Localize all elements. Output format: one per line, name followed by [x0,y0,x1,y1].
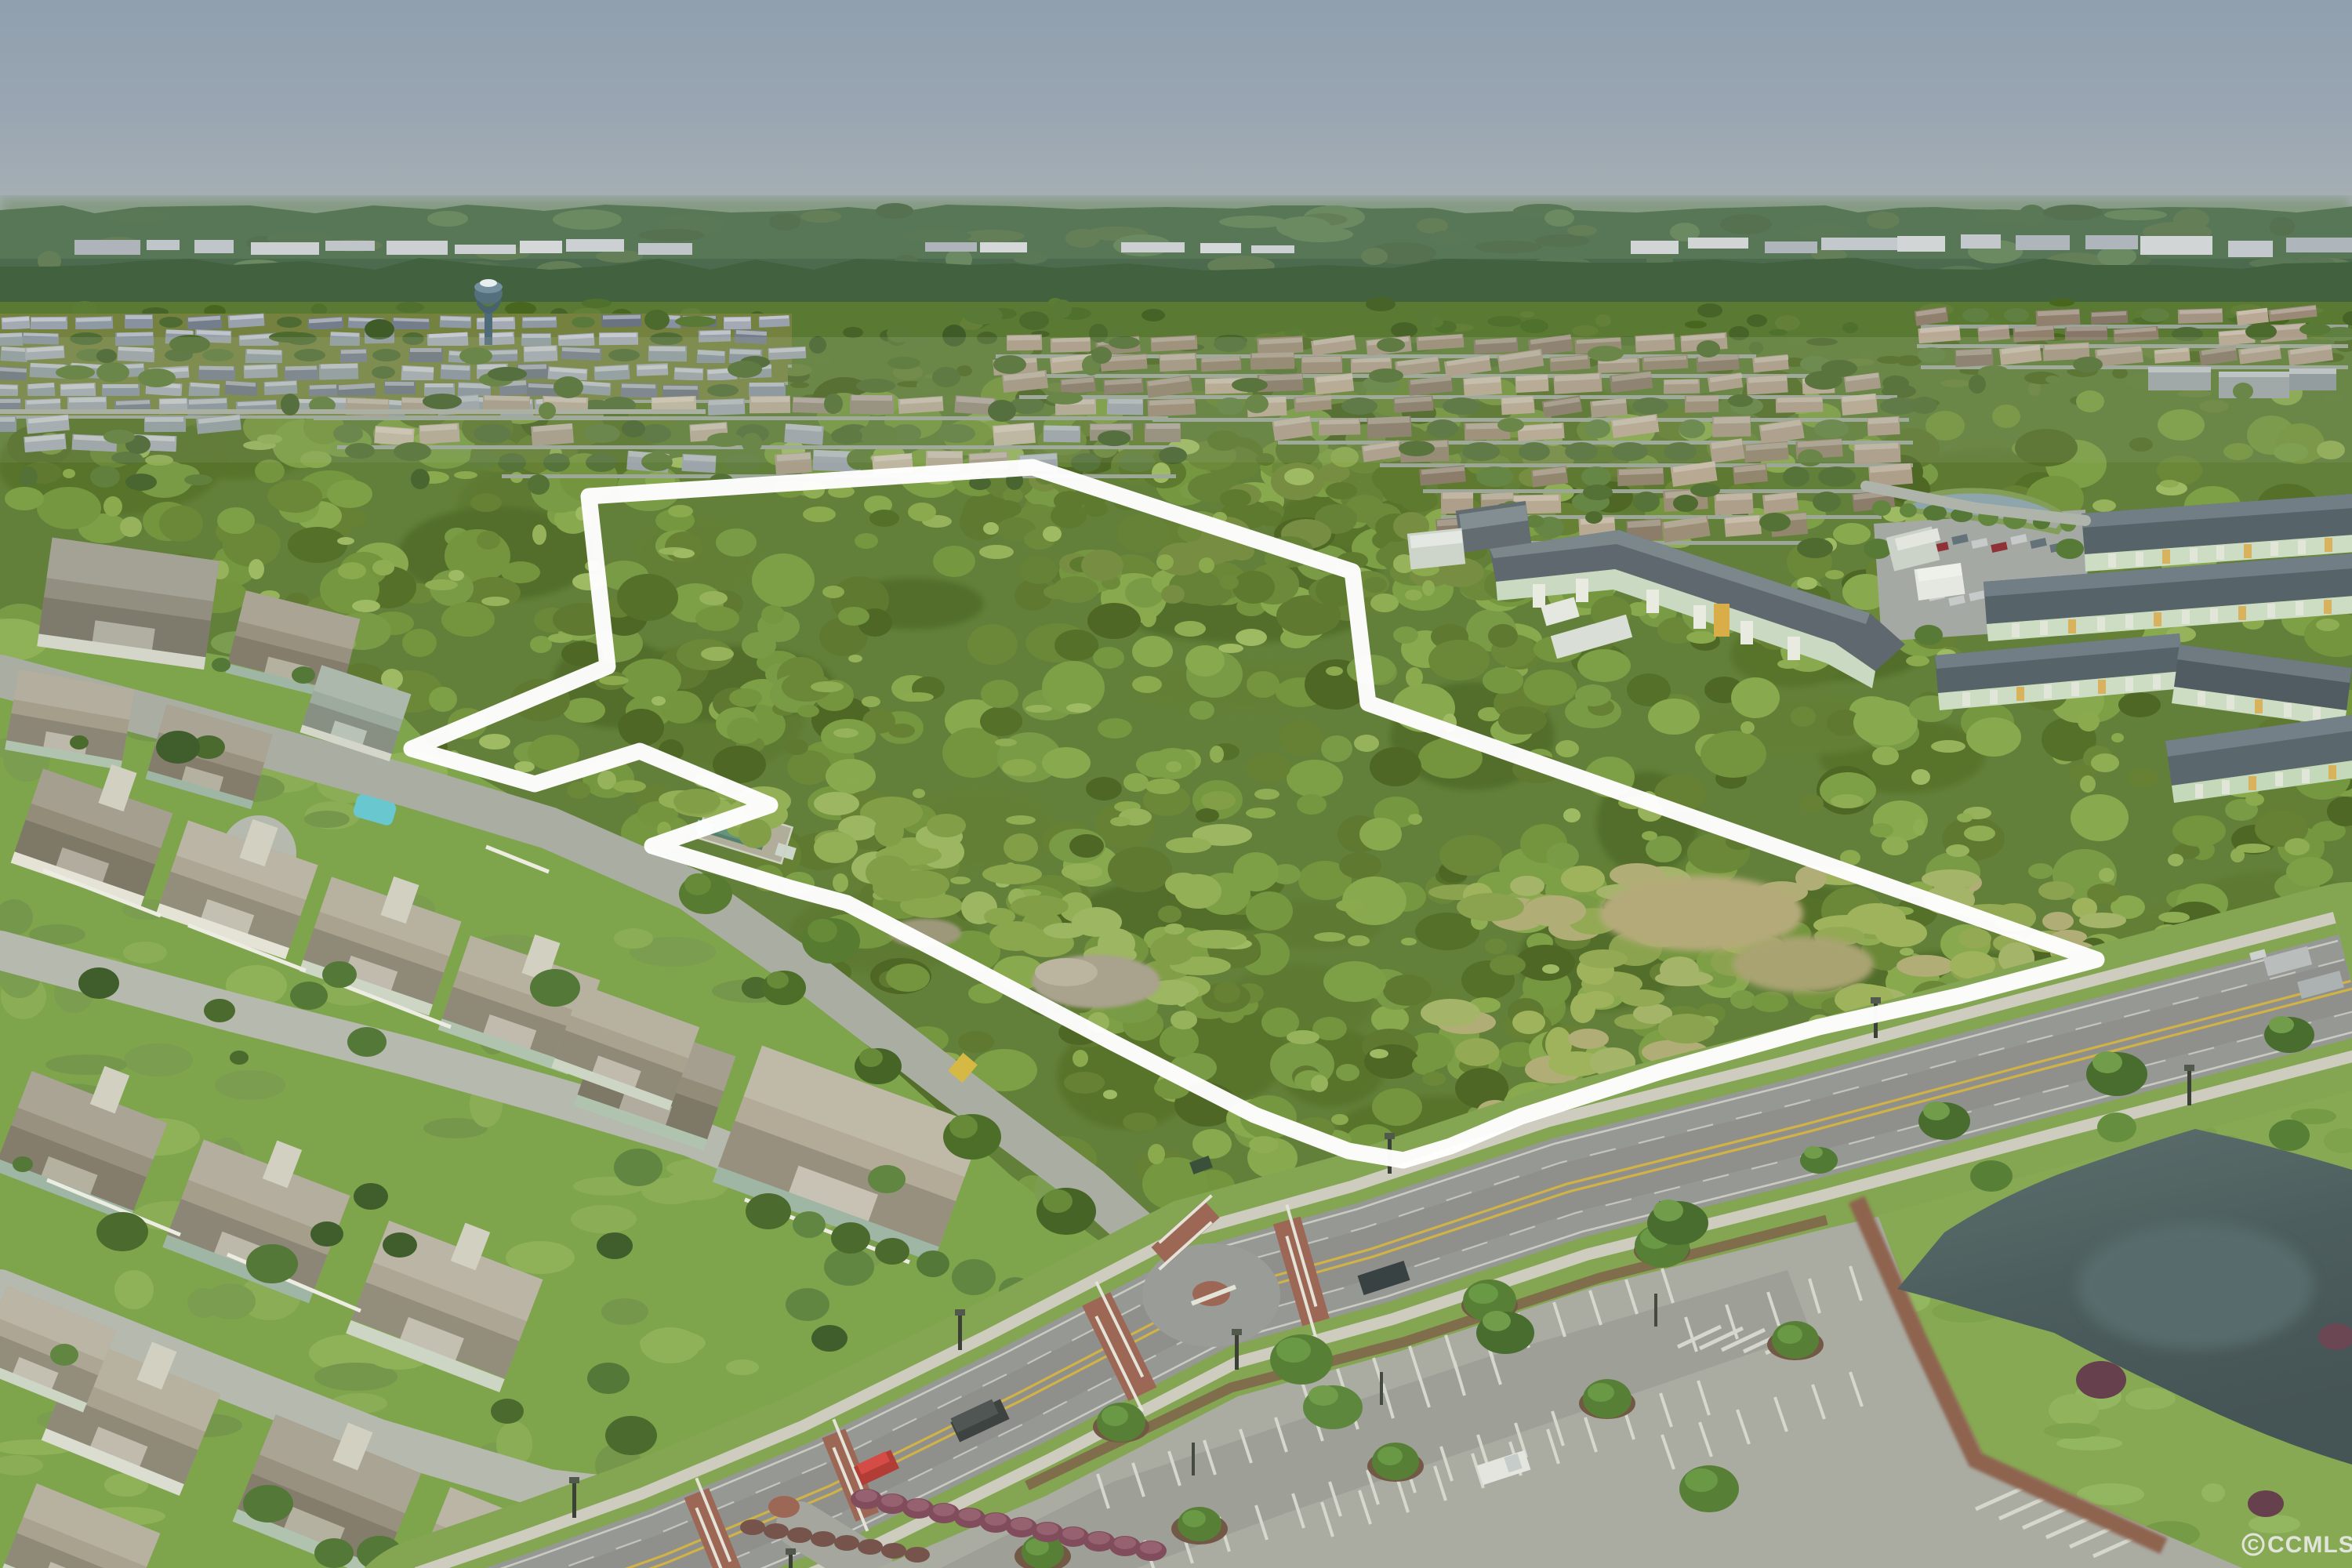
svg-text:C: C [2248,1537,2259,1554]
svg-text:CCMLS: CCMLS [2267,1532,2352,1558]
